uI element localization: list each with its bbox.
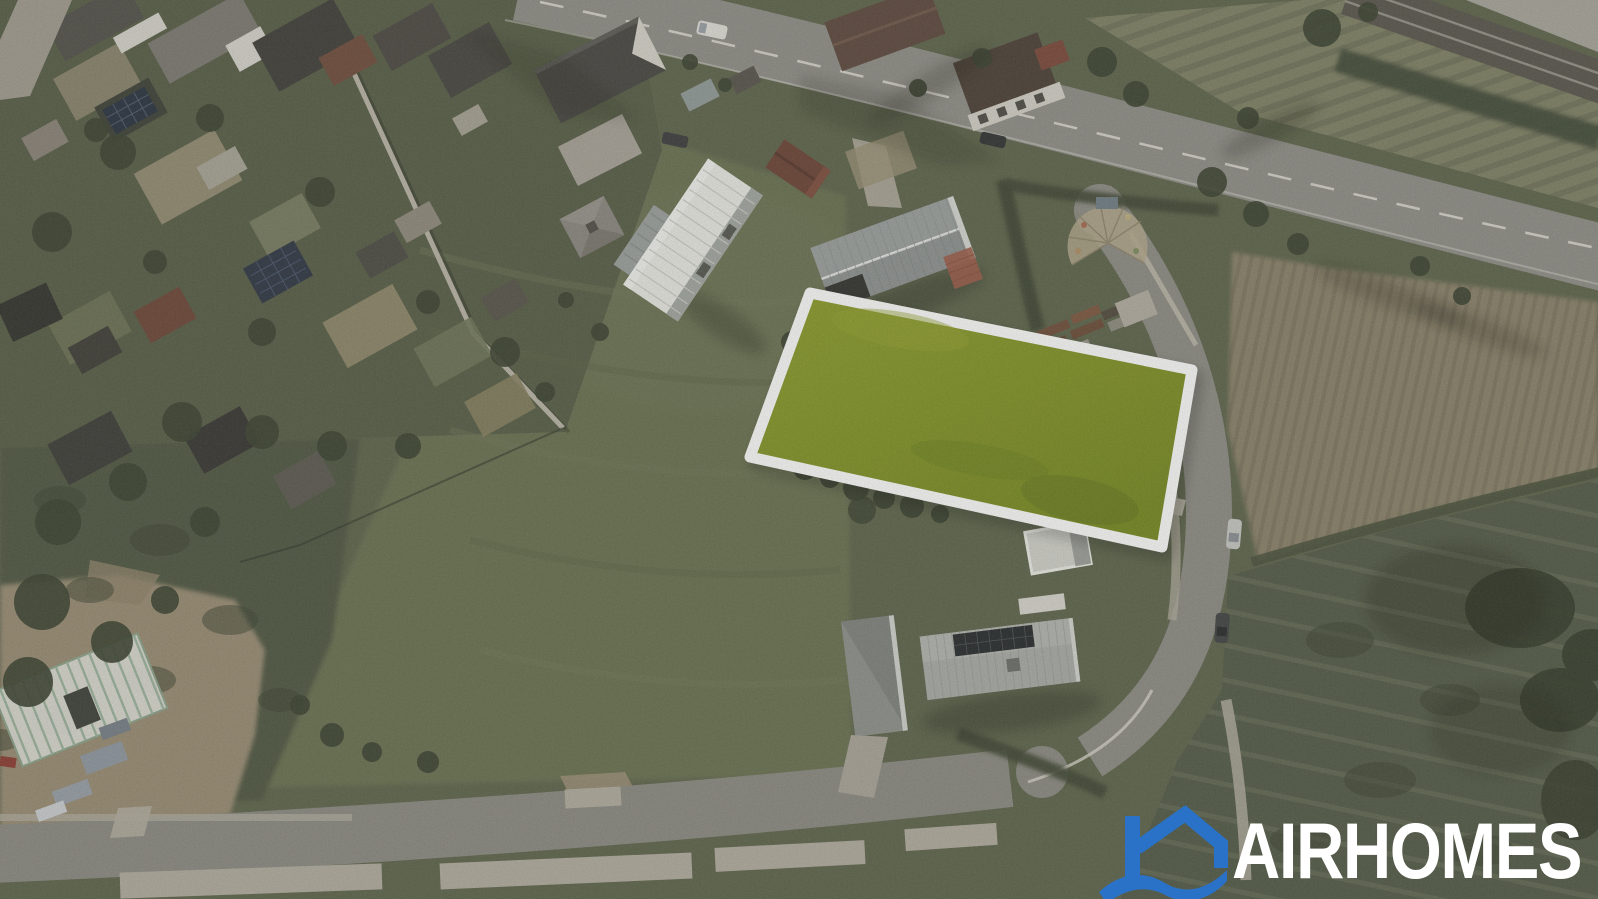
aerial-photo — [0, 0, 1598, 899]
photo-grain — [0, 0, 1598, 899]
aerial-photo-stage: AIRHOMES — [0, 0, 1598, 899]
